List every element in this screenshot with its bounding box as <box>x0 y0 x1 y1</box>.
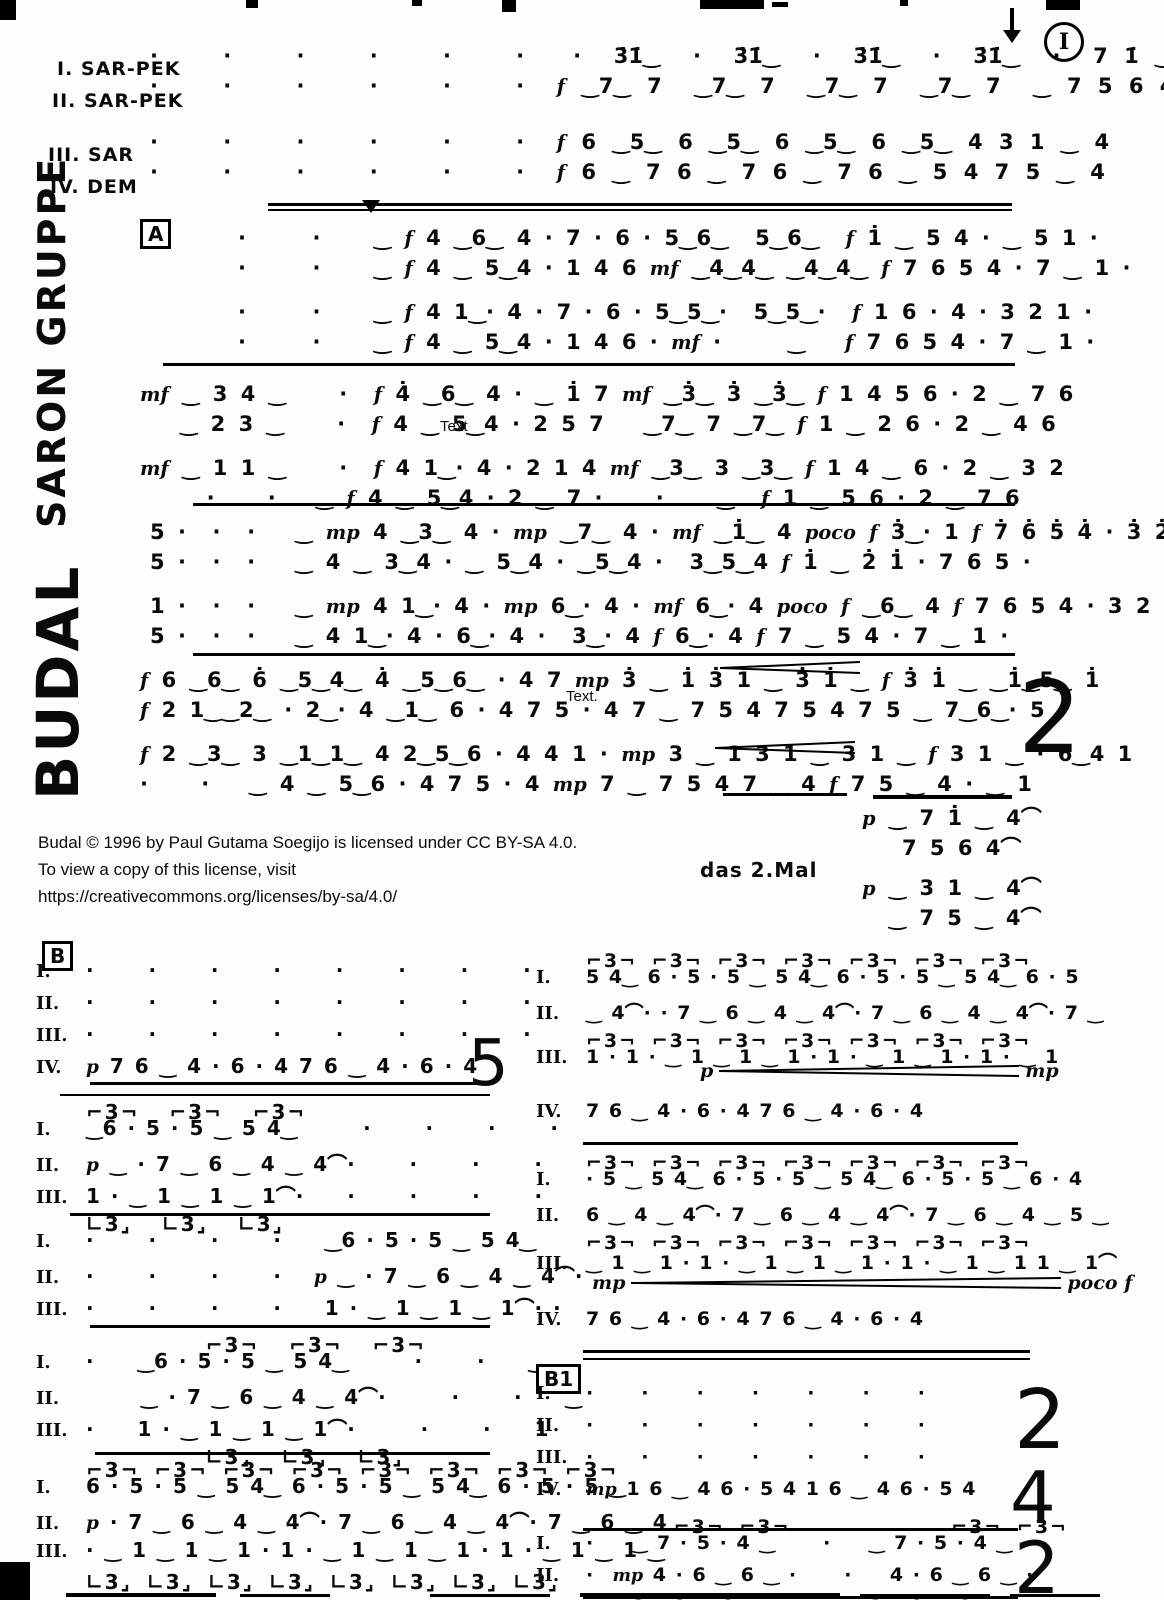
dynamic-from: mp <box>592 1272 625 1294</box>
notation-row: · · ‿ f 4 ‿ 5‿4 · 1 4 6 mf ‿4‿4‿ ‿4‿4‿ f… <box>238 256 1038 286</box>
system-divider <box>193 653 1015 656</box>
dynamic-to: mp <box>1025 1060 1058 1082</box>
system-divider <box>90 1325 490 1328</box>
header-notation: · · · · · · · 3̇1̇‿ · 3̇1̇‿ · 3̇1̇‿ · 3̇… <box>150 44 1030 190</box>
crescendo-p-mp: p mp <box>700 1060 1059 1082</box>
section-b-left-system-1: I.· · · · · · · ·II.· · · · · · · ·III.·… <box>36 958 496 1086</box>
part-label: III. <box>36 1187 86 1208</box>
notation-row: · · ‿ f 4 ‿6‿ 4 · 7 · 6 · 5‿6‿ 5‿6‿ f 1̇… <box>238 226 1038 256</box>
notation-text: · mp 4 · 6 ‿ 6 ‿ · · 4 · 6 ‿ 6 ‿ · <box>586 1564 1033 1586</box>
scan-artifact <box>1046 0 1080 10</box>
notation-row: ‿ 7 5 ‿ 4⌒ <box>862 902 1042 932</box>
scan-artifact <box>900 0 908 6</box>
part-label: III. <box>36 1541 86 1562</box>
system-divider <box>60 1094 490 1096</box>
system-divider <box>583 1350 1030 1353</box>
notation-text: ∟3⌟ ∟3⌟ ∟3⌟ ∟3⌟ ∟3⌟ ∟3⌟ ∟3⌟ ∟3⌟ <box>86 1570 559 1594</box>
license-url: https://creativecommons.org/licenses/by-… <box>38 887 397 907</box>
notation-text: 5 · · · ‿ 4 ‿ 3‿4 · ‿ 5‿4 · ‿5‿4 · 3‿5‿4… <box>150 550 1031 574</box>
part-label: IV. <box>536 1309 586 1330</box>
notation-row: I.5 4‿ 6 · 5 · 5 ‿ 5 4‿ 6 · 5 · 5 ‿ 5 4‿… <box>536 966 1036 998</box>
part-label: II. <box>36 1513 86 1534</box>
phrase-underline <box>723 793 847 796</box>
part-label: III. <box>36 1420 86 1441</box>
notation-text: · · ‿ f 4 1‿· 4 · 7 · 6 · 5‿5‿· 5‿5‿· f … <box>238 300 1092 324</box>
notation-text: p ‿ 3 1 ‿ 4⌒ <box>862 872 1042 902</box>
notation-row: mf ‿ 3 4 ‿ · f 4̇ ‿6‿ 4 · ‿ 1̇ 7 mf ‿3̇‿… <box>140 382 1030 412</box>
tuplet-bracket-row: ⌐3¬ ⌐3¬ ⌐3¬ <box>36 1333 496 1349</box>
notation-row: II.· · · · · · · · <box>36 990 496 1022</box>
notation-text: p ‿ 7 1̇ ‿ 4⌒ <box>862 802 1042 832</box>
system-divider <box>95 1452 490 1455</box>
part-label: II. <box>536 1205 586 1226</box>
part-label-sar-3: III. SAR <box>48 144 134 166</box>
crescendo-mp-pocof: mp poco f <box>592 1272 1132 1294</box>
tuplet-bracket-row: ⌐3¬ ⌐3¬ ⌐3¬ ⌐3¬ ⌐3¬ ⌐3¬ ⌐3¬ <box>536 1152 1036 1168</box>
notation-row: II. ‿ · 7 ‿ 6 ‿ 4 ‿ 4⌒· · · ‿ <box>36 1381 496 1413</box>
notation-row: 5 · · · ‿ 4 ‿ 3‿4 · ‿ 5‿4 · ‿5‿4 · 3‿5‿4… <box>150 550 1030 580</box>
notation-text: · · · · · · f ‿7‿ 7 ‿7‿ 7 ‿7‿ 7 ‿7‿ 7 ‿ … <box>150 74 1164 98</box>
scan-artifact <box>772 2 788 7</box>
section-a-system-1: · · ‿ f 4 ‿6‿ 4 · 7 · 6 · 5‿6‿ 5‿6‿ f 1̇… <box>238 226 1038 360</box>
notation-row: I.6 · 5 · 5 ‿ 5 4‿ 6 · 5 · 5 ‿ 5 4‿ 6 · … <box>36 1474 496 1506</box>
notation-row: I.· ‿6 · 5 · 5 ‿ 5 4‿ · · ‿ <box>36 1349 496 1381</box>
part-label: I. <box>36 961 86 982</box>
part-label: I. <box>36 1231 86 1252</box>
scan-artifact <box>246 0 258 8</box>
part-label: IV. <box>536 1479 586 1500</box>
section-b1-last-system: ⌐3¬ ⌐3¬ ⌐3¬ ⌐3¬I.· ‿ 7 · 5 · 4 ‿ · ‿ 7 ·… <box>536 1516 1036 1600</box>
part-label: II. <box>36 993 86 1014</box>
notation-row: I.· 5 ‿ 5 4‿ 6 · 5 · 5 ‿ 5 4‿ 6 · 5 · 5 … <box>536 1168 1036 1200</box>
part-label: II. <box>536 1415 586 1436</box>
notation-row: III.· · · · 1 · ‿ 1 ‿ 1 ‿ 1⌒· · <box>36 1292 496 1324</box>
notation-row: II.p · 7 ‿ 6 ‿ 4 ‿ 4⌒· 7 ‿ 6 ‿ 4 ‿ 4⌒· 7… <box>36 1506 496 1538</box>
notation-text: 7 5 6 4⌒ <box>862 832 1021 862</box>
part-label: III. <box>36 1299 86 1320</box>
notation-row: II.p ‿ · 7 ‿ 6 ‿ 4 ‿ 4⌒· · · · <box>36 1148 496 1180</box>
license-line-1: Budal © 1996 by Paul Gutama Soegijo is l… <box>38 833 577 853</box>
part-label: I. <box>536 1533 586 1554</box>
notation-row: p ‿ 3 1 ‿ 4⌒ <box>862 872 1042 902</box>
notation-text: mp 1 6 ‿ 4 6 · 5 4 1 6 ‿ 4 6 · 5 4 <box>586 1478 975 1500</box>
ocr-text-overlay: Text. <box>566 688 598 705</box>
notation-row: I.· · · · ‿6 · 5 · 5 ‿ 5 4‿ <box>36 1228 496 1260</box>
down-marker-icon <box>362 200 380 213</box>
notation-text: · · ‿ 4 ‿ 5‿6 · 4 7 5 · 4 mp 7 ‿ 7 5 4 7… <box>140 772 1032 796</box>
part-label: II. <box>36 1388 86 1409</box>
section-b1-system: I.· · · · · · ·II.· · · · · · ·III.· · ·… <box>536 1382 1036 1510</box>
scan-artifact <box>0 1562 30 1600</box>
tuplet-bracket-row: ⌐3¬ ⌐3¬ ⌐3¬ ⌐3¬ ⌐3¬ ⌐3¬ ⌐3¬ <box>536 1030 1036 1046</box>
notation-row: 5 · · · ‿ mp 4 ‿3‿ 4 · mp ‿7‿ 4 · mf ‿1̇… <box>150 520 1030 550</box>
notation-row: · · · · · · f ‿7‿ 7 ‿7‿ 7 ‿7‿ 7 ‿7‿ 7 ‿ … <box>150 74 1030 104</box>
dynamic-from: p <box>700 1060 713 1082</box>
ocr-text-overlay: Text <box>440 418 468 435</box>
scanned-score-page: I BUDAL SARON GRUPPE I. SAR-PEK II. SAR-… <box>0 0 1164 1600</box>
system-underline <box>583 1142 1018 1145</box>
notation-text: · ‿ 7 · 5 · 4 ‿ · ‿ 7 · 5 · 4 ‿ <box>586 1532 1012 1554</box>
notation-row: · · ‿ f 4 1‿· 4 · 7 · 6 · 5‿5‿· 5‿5‿· f … <box>238 300 1038 330</box>
section-b-left-system-3: I.· · · · ‿6 · 5 · 5 ‿ 5 4‿II.· · · · p … <box>36 1228 496 1324</box>
tuplet-bracket-row: ⌐3¬ ⌐3¬ ⌐3¬ ⌐3¬ ⌐3¬ ⌐3¬ ⌐3¬ <box>536 950 1036 966</box>
notation-text: · · · · · · f 6 ‿ 7 6 ‿ 7 6 ‿ 7 6 ‿ 5 4 … <box>150 160 1105 184</box>
tuplet-bracket-row: ⌐3¬ ⌐3¬ ⌐3¬ ⌐3¬ ⌐3¬ ⌐3¬ ⌐3¬ ⌐3¬ <box>36 1458 496 1474</box>
repeat-count: 2 <box>1018 668 1082 768</box>
notation-text: · · · · · · · · <box>86 990 531 1014</box>
notation-text: ‿ 4⌒· · 7 ‿ 6 ‿ 4 ‿ 4⌒· 7 ‿ 6 ‿ 4 ‿ 4⌒· … <box>586 998 1103 1025</box>
part-label-dem-4: IV. DEM <box>50 176 138 198</box>
notation-text: · · · · · · · 3̇1̇‿ · 3̇1̇‿ · 3̇1̇‿ · 3̇… <box>150 44 1164 68</box>
notation-text: · · ‿ f 4 ‿ 5‿4 · 1 4 6 · mf · ‿ f 7 6 5… <box>238 330 1094 354</box>
notation-text: · ‿6 · 5 · 5 ‿ 5 4‿ · · ‿ <box>86 1349 545 1373</box>
notation-text: · · · · · · · <box>586 1382 925 1404</box>
notation-text: 7 6 ‿ 4 · 6 · 4 7 6 ‿ 4 · 6 · 4 <box>586 1100 923 1122</box>
system-underline <box>583 1596 1018 1599</box>
notation-text: · 1 · ‿ 1 ‿ 1 ‿ 1⌒· · · 1 <box>86 1413 548 1442</box>
crescendo-hairpin <box>720 660 860 676</box>
notation-row: III.· ‿ 1 ‿ 1 ‿ 1 · 1 · ‿ 1 ‿ 1 ‿ 1 · 1 … <box>36 1538 496 1570</box>
repeat-count: 5 <box>468 1032 509 1096</box>
notation-text: ‿ 7 5 ‿ 4⌒ <box>862 902 1042 932</box>
notation-row: I.· · · · · · · <box>536 1382 1036 1414</box>
part-label: II. <box>36 1155 86 1176</box>
notation-text: ‿ 1 ‿ 1 · 1 · ‿ 1 ‿ 1 ‿ 1 · 1 · ‿ 1 ‿ 1 … <box>586 1248 1117 1275</box>
notation-text: · · · · ‿6 · 5 · 5 ‿ 5 4‿ <box>86 1228 536 1252</box>
scan-artifact <box>412 0 422 6</box>
scan-artifact <box>700 0 764 9</box>
notation-row: II.6 ‿ 4 ‿ 4⌒· 7 ‿ 6 ‿ 4 ‿ 4⌒· 7 ‿ 6 ‿ 4… <box>536 1200 1036 1232</box>
tuplet-bracket-row: ⌐3¬ ⌐3¬ ⌐3¬ ⌐3¬ ⌐3¬ ⌐3¬ ⌐3¬ <box>536 1232 1036 1248</box>
license-line-2: To view a copy of this license, visit <box>38 860 296 880</box>
notation-row: 7 5 6 4⌒ <box>862 832 1042 862</box>
system-divider <box>193 503 1015 506</box>
system-divider <box>583 1358 1030 1360</box>
notation-text: p ‿ · 7 ‿ 6 ‿ 4 ‿ 4⌒· · · · <box>86 1148 542 1177</box>
notation-text: · · · · · · · <box>586 1414 925 1436</box>
part-label: II. <box>36 1267 86 1288</box>
notation-text: ‿ 2 3 ‿ · f 4 ‿ 5‿4 · 2 5 7 ‿7‿ 7 ‿7‿ f … <box>140 412 1056 436</box>
notation-text: mf ‿ 1 1 ‿ · f 4 1‿· 4 · 2 1 4 mf ‿3‿ 3 … <box>140 456 1064 480</box>
repeat-count: 2 <box>1014 1380 1066 1462</box>
part-label: II. <box>536 1565 586 1586</box>
das-2-mal-note: das 2.Mal <box>700 858 817 882</box>
part-label: I. <box>536 967 586 988</box>
notation-text: 1 · · · ‿ mp 4 1‿· 4 · mp 6‿· 4 · mf 6‿·… <box>150 594 1164 618</box>
notation-text: 7 6 ‿ 4 · 6 · 4 7 6 ‿ 4 · 6 · 4 <box>586 1308 923 1330</box>
scan-artifact <box>430 1594 550 1597</box>
notation-text: · · · · · · · · <box>86 958 531 982</box>
notation-row: 5 · · · ‿ 4 1‿· 4 · 6‿· 4 · 3‿· 4 f 6‿· … <box>150 624 1030 654</box>
notation-text: mf ‿ 3 4 ‿ · f 4̇ ‿6‿ 4 · ‿ 1̇ 7 mf ‿3̇‿… <box>140 382 1073 406</box>
notation-text: · · · · · · · · <box>86 1022 531 1046</box>
system-divider <box>873 795 1012 799</box>
notation-text: f 2 ‿3‿ 3 ‿1‿1‿ 4 2‿5‿6 · 4 4 1 · mp 3 ‿… <box>140 742 1132 766</box>
notation-row: II.‿ 4⌒· · 7 ‿ 6 ‿ 4 ‿ 4⌒· 7 ‿ 6 ‿ 4 ‿ 4… <box>536 998 1036 1030</box>
part-label: III. <box>36 1025 86 1046</box>
notation-text: · · · · 1 · ‿ 1 ‿ 1 ‿ 1⌒· · <box>86 1292 561 1321</box>
part-label: I. <box>536 1169 586 1190</box>
notation-text: · · · · · · f 6 ‿5‿ 6 ‿5‿ 6 ‿5‿ 6 ‿5‿ 4 … <box>150 130 1109 154</box>
section-b-right-iv-2: IV.7 6 ‿ 4 · 6 · 4 7 6 ‿ 4 · 6 · 4 <box>536 1308 1036 1340</box>
tuplet-bracket-row: ⌐3¬ ⌐3¬ ⌐3¬ <box>36 1100 496 1116</box>
notation-row: I.· ‿ 7 · 5 · 4 ‿ · ‿ 7 · 5 · 4 ‿ <box>536 1532 1036 1564</box>
notation-text: · · ‿ f 4 ‿6‿ 4 · 7 · 6 · 5‿6‿ 5‿6‿ f 1̇… <box>238 226 1098 250</box>
section-b-left-system-2: ⌐3¬ ⌐3¬ ⌐3¬I.‿6 · 5 · 5 ‿ 5 4‿ · · · ·II… <box>36 1100 496 1228</box>
page-title-main: BUDAL <box>24 564 92 800</box>
tuplet-bracket-row: ⌐3¬ ⌐3¬ ⌐3¬ ⌐3¬ <box>536 1516 1036 1532</box>
part-label: I. <box>36 1119 86 1140</box>
notation-text: 5 4‿ 6 · 5 · 5 ‿ 5 4‿ 6 · 5 · 5 ‿ 5 4‿ 6… <box>586 966 1079 988</box>
part-label: IV. <box>36 1057 86 1078</box>
notation-row: III.· · · · · · · · <box>36 1022 496 1054</box>
notation-text: 5 · · · ‿ 4 1‿· 4 · 6‿· 4 · 3‿· 4 f 6‿· … <box>150 624 1008 648</box>
notation-row: p ‿ 7 1̇ ‿ 4⌒ <box>862 802 1042 832</box>
section-a-system-3: 5 · · · ‿ mp 4 ‿3‿ 4 · mp ‿7‿ 4 · mf ‿1̇… <box>150 520 1030 654</box>
notation-text: 6 ‿ 4 ‿ 4⌒· 7 ‿ 6 ‿ 4 ‿ 4⌒· 7 ‿ 6 ‿ 4 ‿ … <box>586 1200 1109 1227</box>
part-label: III. <box>536 1047 586 1068</box>
notation-row: f 2 ‿3‿ 3 ‿1‿1‿ 4 2‿5‿6 · 4 4 1 · mp 3 ‿… <box>140 742 1030 772</box>
system-underline <box>90 1082 486 1085</box>
part-label: III. <box>536 1253 586 1274</box>
part-label: I. <box>536 1383 586 1404</box>
notation-row: I.‿6 · 5 · 5 ‿ 5 4‿ · · · · <box>36 1116 496 1148</box>
scan-artifact <box>0 0 16 20</box>
notation-row: IV.mp 1 6 ‿ 4 6 · 5 4 1 6 ‿ 4 6 · 5 4 <box>536 1478 1036 1510</box>
notation-row: III.· 1 · ‿ 1 ‿ 1 ‿ 1⌒· · · 1 <box>36 1413 496 1445</box>
notation-row: · · · · · · f 6 ‿ 7 6 ‿ 7 6 ‿ 7 6 ‿ 5 4 … <box>150 160 1030 190</box>
system-divider <box>163 363 1015 366</box>
part-label: I. <box>36 1477 86 1498</box>
down-arrow-icon <box>1010 8 1014 32</box>
section-b-left-system-5: ⌐3¬ ⌐3¬ ⌐3¬ ⌐3¬ ⌐3¬ ⌐3¬ ⌐3¬ ⌐3¬I.6 · 5 ·… <box>36 1458 496 1586</box>
notation-row: · · · · · · · 3̇1̇‿ · 3̇1̇‿ · 3̇1̇‿ · 3̇… <box>150 44 1030 74</box>
notation-text: f 6 ‿6‿ 6̇ ‿5‿4‿ 4̇ ‿5‿6‿ · 4 7 mp 3̇ ‿ … <box>140 668 1099 692</box>
notation-row: · · ‿ f 4 ‿ 5‿4 · 2 ‿ 7 · · ‿ f 1 ‿ 5 6 … <box>140 486 1030 516</box>
repeat-count: 2 <box>1014 1532 1060 1600</box>
notation-text: ‿6 · 5 · 5 ‿ 5 4‿ · · · · <box>86 1116 558 1140</box>
notation-row: I.· · · · · · · · <box>36 958 496 990</box>
notation-row: ‿ 2 3 ‿ · f 4 ‿ 5‿4 · 2 5 7 ‿7‿ 7 ‿7‿ f … <box>140 412 1030 442</box>
notation-row: II.· mp 4 · 6 ‿ 6 ‿ · · 4 · 6 ‿ 6 ‿ · <box>536 1564 1036 1596</box>
notation-row: · · ‿ f 4 ‿ 5‿4 · 1 4 6 · mf · ‿ f 7 6 5… <box>238 330 1038 360</box>
notation-row: IV.7 6 ‿ 4 · 6 · 4 7 6 ‿ 4 · 6 · 4 <box>536 1308 1036 1340</box>
notation-row: II.· · · · · · · <box>536 1414 1036 1446</box>
notation-text: p 7 6 ‿ 4 · 6 · 4 7 6 ‿ 4 · 6 · 4 <box>86 1054 477 1078</box>
notation-text: 1 · ‿ 1 ‿ 1 ‿ 1⌒· · · · · <box>86 1180 542 1209</box>
notation-text: · · ‿ f 4 ‿ 5‿4 · 1 4 6 mf ‿4‿4‿ ‿4‿4‿ f… <box>238 256 1131 280</box>
notation-text: · 5 ‿ 5 4‿ 6 · 5 · 5 ‿ 5 4‿ 6 · 5 · 5 ‿ … <box>586 1168 1082 1190</box>
notation-text: · · · · p ‿ · 7 ‿ 6 ‿ 4 ‿ 4⌒· <box>86 1260 583 1289</box>
part-label: II. <box>536 1003 586 1024</box>
notation-row: · · · · · · f 6 ‿5‿ 6 ‿5‿ 6 ‿5‿ 6 ‿5‿ 4 … <box>150 130 1030 160</box>
crescendo-hairpin <box>715 740 855 756</box>
notation-text: · · ‿ f 4 ‿ 5‿4 · 2 ‿ 7 · · ‿ f 1 ‿ 5 6 … <box>140 486 1020 510</box>
section-b-left-system-4: ⌐3¬ ⌐3¬ ⌐3¬I.· ‿6 · 5 · 5 ‿ 5 4‿ · · ‿II… <box>36 1333 496 1461</box>
notation-row: mf ‿ 1 1 ‿ · f 4 1‿· 4 · 2 1 4 mf ‿3‿ 3 … <box>140 456 1030 486</box>
page-title-sub: SARON GRUPPE <box>30 156 74 528</box>
system-divider <box>70 1213 490 1216</box>
part-label: I. <box>36 1352 86 1373</box>
notation-row: III.· · · · · · · <box>536 1446 1036 1478</box>
section-a-marker: A <box>140 219 171 249</box>
down-arrow-icon <box>1003 30 1021 43</box>
notation-text: · · · · · · · <box>586 1446 925 1468</box>
notation-row: IV.7 6 ‿ 4 · 6 · 4 7 6 ‿ 4 · 6 · 4 <box>536 1100 1036 1132</box>
section-b-right-system-2: ⌐3¬ ⌐3¬ ⌐3¬ ⌐3¬ ⌐3¬ ⌐3¬ ⌐3¬I.· 5 ‿ 5 4‿ … <box>536 1152 1036 1280</box>
notation-row: 1 · · · ‿ mp 4 1‿· 4 · mp 6‿· 4 · mf 6‿·… <box>150 594 1030 624</box>
part-label: IV. <box>536 1101 586 1122</box>
tuplet-bracket-row: ∟3⌟ ∟3⌟ ∟3⌟ ∟3⌟ ∟3⌟ ∟3⌟ ∟3⌟ ∟3⌟ <box>36 1570 496 1586</box>
scan-artifact <box>240 1594 330 1597</box>
section-a-coda: p ‿ 7 1̇ ‿ 4⌒ 7 5 6 4⌒p ‿ 3 1 ‿ 4⌒ ‿ 7 5… <box>862 802 1042 932</box>
section-b-right-iv-1: IV.7 6 ‿ 4 · 6 · 4 7 6 ‿ 4 · 6 · 4 <box>536 1100 1036 1132</box>
notation-text: 5 · · · ‿ mp 4 ‿3‿ 4 · mp ‿7‿ 4 · mf ‿1̇… <box>150 520 1164 544</box>
dynamic-to: poco f <box>1067 1272 1132 1294</box>
section-b-right-system-1: ⌐3¬ ⌐3¬ ⌐3¬ ⌐3¬ ⌐3¬ ⌐3¬ ⌐3¬I.5 4‿ 6 · 5 … <box>536 950 1036 1078</box>
scan-artifact <box>502 0 516 12</box>
notation-row: III.1 · ‿ 1 ‿ 1 ‿ 1⌒· · · · · <box>36 1180 496 1212</box>
section-a-system-2: mf ‿ 3 4 ‿ · f 4̇ ‿6‿ 4 · ‿ 1̇ 7 mf ‿3̇‿… <box>140 382 1030 516</box>
notation-row: II.· · · · p ‿ · 7 ‿ 6 ‿ 4 ‿ 4⌒· <box>36 1260 496 1292</box>
notation-text: ‿ · 7 ‿ 6 ‿ 4 ‿ 4⌒· · · ‿ <box>86 1381 582 1410</box>
part-label: III. <box>536 1447 586 1468</box>
